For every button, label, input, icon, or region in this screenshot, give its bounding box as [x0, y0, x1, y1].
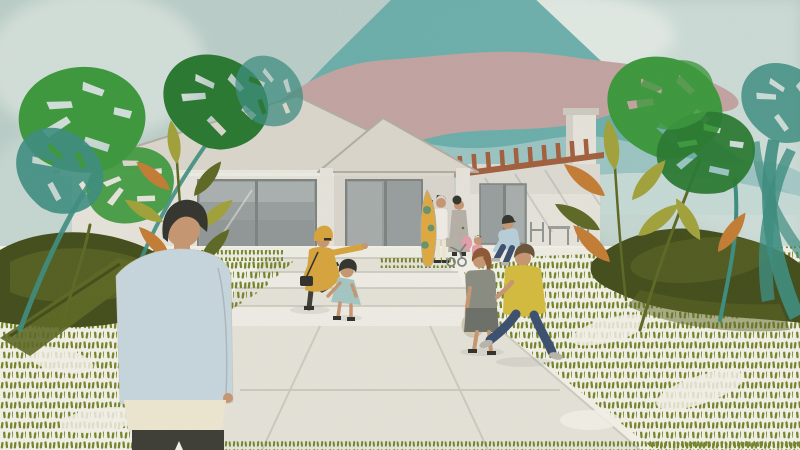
illustration-canvas: Watercolor-collage illustration: single-… [0, 0, 800, 450]
paper-grain-overlay [0, 0, 800, 450]
illustration-stage: Watercolor-collage illustration: single-… [0, 0, 800, 450]
